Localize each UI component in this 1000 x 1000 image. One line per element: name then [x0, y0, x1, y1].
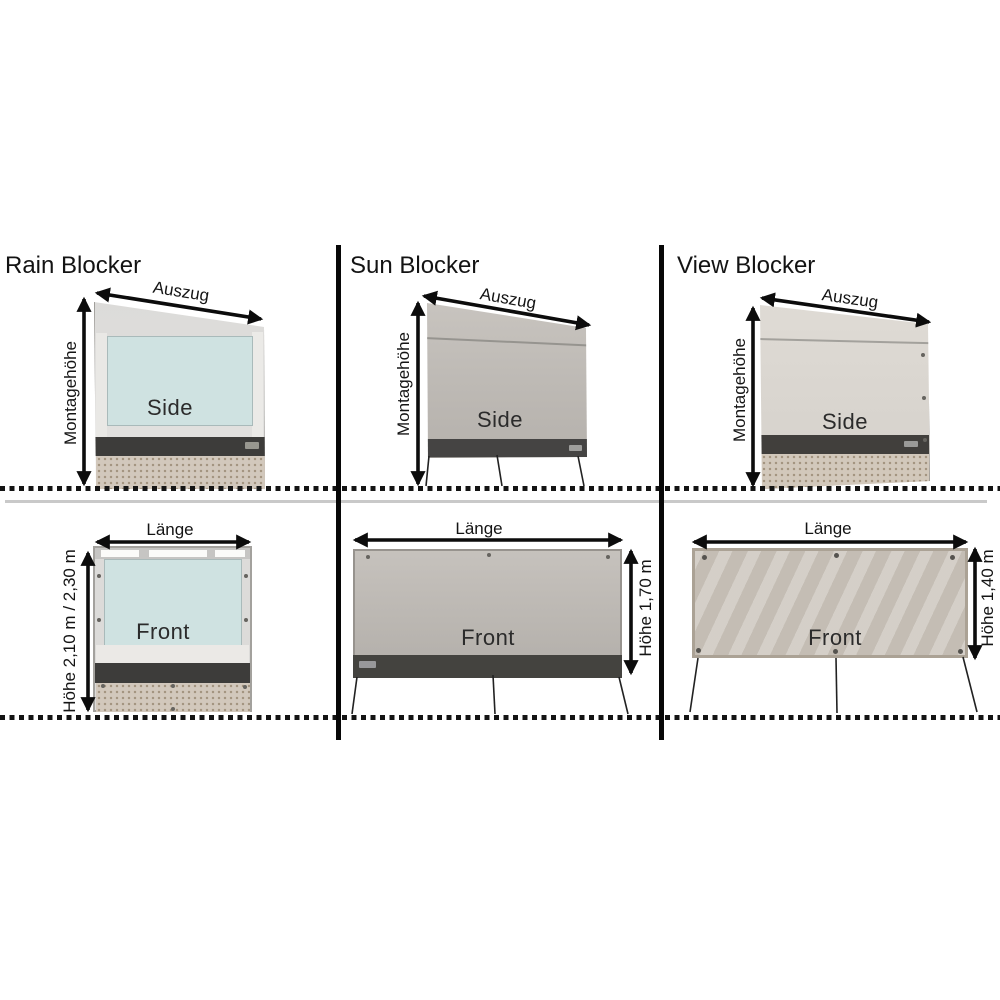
column-title-rain-blocker: Rain Blocker: [5, 252, 141, 280]
rain-front-view-label: Front: [136, 619, 190, 645]
view-front-view-label: Front: [808, 625, 862, 651]
rain-montagehoehe-label: Montagehöhe: [61, 341, 81, 445]
column-divider-right: [659, 245, 664, 740]
view-side-fastener-dot: [921, 353, 925, 357]
view-blocker-side-panel: [758, 303, 931, 490]
view-front-fastener-dot: [702, 555, 707, 560]
rain-front-fastener-dot: [97, 618, 101, 622]
sun-front-fastener-dot: [487, 553, 491, 557]
sun-front-fastener-dot: [366, 555, 370, 559]
rain-front-fastener-dot: [101, 684, 105, 688]
column-title-view-blocker: View Blocker: [677, 252, 815, 280]
view-side-view-label: Side: [822, 409, 868, 435]
baseline-gray-line: [5, 500, 987, 503]
sun-blocker-side-panel: [425, 301, 589, 459]
view-side-skirt: [761, 454, 929, 490]
view-auszug-label: Auszug: [821, 285, 880, 313]
rain-front-rail-segment: [101, 550, 139, 557]
rain-front-fastener-dot: [244, 574, 248, 578]
rain-front-rail-segment: [149, 550, 207, 557]
rain-front-fastener-dot: [243, 685, 247, 689]
rain-front-dark-rail: [95, 663, 250, 683]
sun-side-brand-logo: [569, 445, 582, 451]
sun-side-view-label: Side: [477, 407, 523, 433]
ground-dotted-line-lower: [0, 715, 1000, 720]
sun-front-view-label: Front: [461, 625, 515, 651]
rain-front-rail-segment: [215, 550, 245, 557]
ground-dotted-line-upper: [0, 486, 1000, 491]
sun-front-brand-logo: [359, 661, 376, 668]
rain-side-skirt: [96, 456, 265, 489]
rain-side-view-label: Side: [147, 395, 193, 421]
view-side-fastener-dot: [923, 438, 927, 442]
rain-side-brand-logo: [245, 442, 259, 449]
sun-laenge-label: Länge: [455, 519, 502, 539]
sun-side-body: [425, 301, 589, 459]
sun-side-strap: [578, 456, 584, 486]
column-title-sun-blocker: Sun Blocker: [350, 252, 479, 280]
view-laenge-label: Länge: [804, 519, 851, 539]
sun-front-fastener-dot: [606, 555, 610, 559]
rain-hoehe-label: Höhe 2,10 m / 2,30 m: [60, 549, 80, 712]
sun-front-strap: [619, 677, 628, 714]
sun-front-strap: [352, 677, 357, 714]
rain-auszug-label: Auszug: [151, 278, 210, 307]
rain-front-fastener-dot: [244, 618, 248, 622]
rain-laenge-label: Länge: [146, 520, 193, 540]
view-side-brand-logo: [904, 441, 918, 447]
rain-side-dark-rail: [95, 437, 265, 456]
view-montagehoehe-label: Montagehöhe: [730, 338, 750, 442]
sun-front-dark-rail: [353, 655, 622, 678]
rain-front-fastener-dot: [171, 684, 175, 688]
sun-auszug-label: Auszug: [478, 284, 537, 314]
blocker-dimension-diagram: Rain Blocker Sun Blocker View Blocker: [0, 0, 1000, 1000]
view-hoehe-label: Höhe 1,40 m: [978, 549, 998, 646]
sun-front-strap: [493, 675, 495, 714]
column-divider-left: [336, 245, 341, 740]
rain-front-fastener-dot: [171, 707, 175, 711]
view-front-strap: [836, 658, 837, 713]
sun-montagehoehe-label: Montagehöhe: [394, 332, 414, 436]
view-front-fastener-dot: [696, 648, 701, 653]
rain-side-right-frame: [252, 332, 263, 437]
sun-blocker-front-panel: [353, 549, 622, 678]
view-front-fastener-dot: [950, 555, 955, 560]
sun-side-strap: [497, 455, 502, 486]
sun-side-dark-rail: [427, 439, 587, 457]
view-front-fastener-dot: [958, 649, 963, 654]
rain-front-white-strip: [96, 645, 249, 663]
view-front-fastener-dot: [834, 553, 839, 558]
rain-front-fastener-dot: [97, 574, 101, 578]
view-front-strap: [690, 658, 698, 712]
sun-hoehe-label: Höhe 1,70 m: [636, 559, 656, 656]
view-front-strap: [963, 657, 977, 712]
view-side-fastener-dot: [922, 396, 926, 400]
sun-side-strap: [426, 456, 429, 486]
